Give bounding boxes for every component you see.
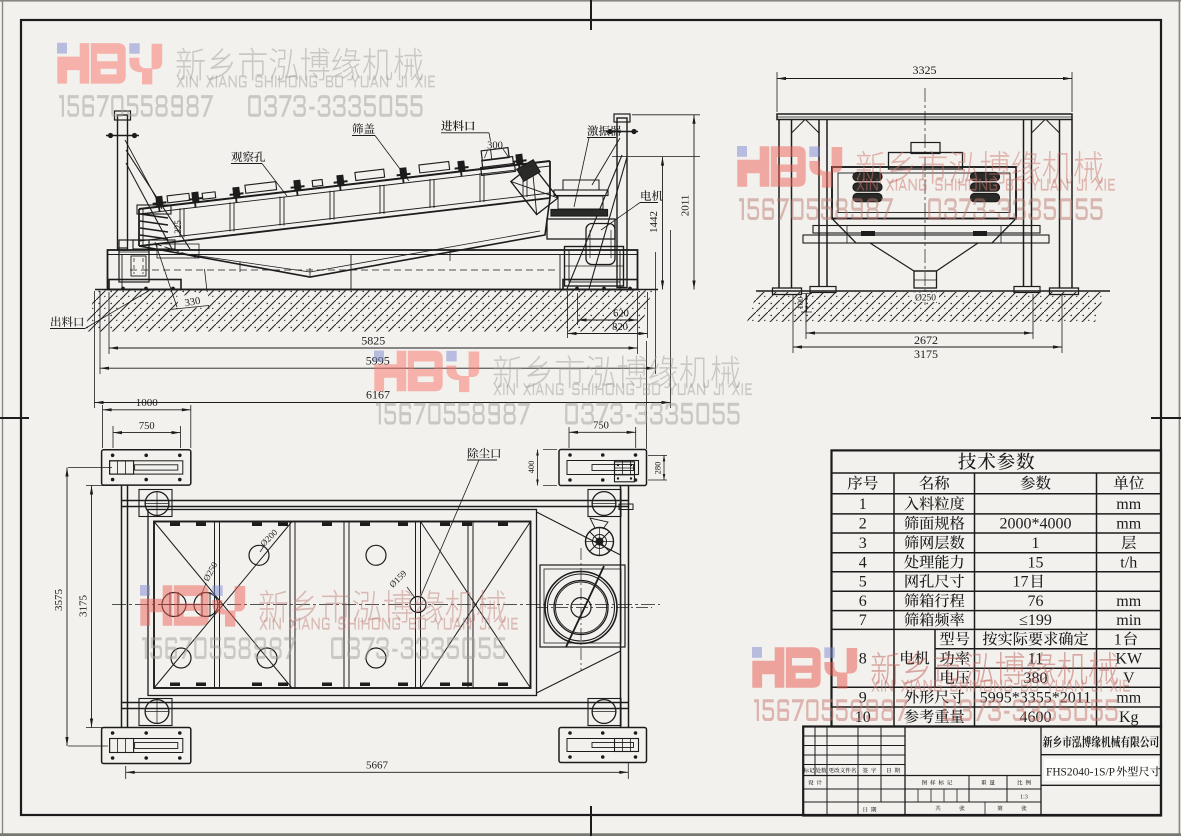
svg-text:1:3: 1:3 bbox=[1020, 794, 1028, 800]
svg-text:1: 1 bbox=[1032, 535, 1040, 552]
svg-text:76: 76 bbox=[1028, 593, 1044, 610]
svg-text:3175: 3175 bbox=[78, 595, 90, 618]
svg-text:2: 2 bbox=[859, 516, 867, 533]
svg-text:300: 300 bbox=[487, 141, 503, 152]
svg-text:mm: mm bbox=[1116, 516, 1141, 533]
svg-text:1: 1 bbox=[859, 496, 867, 513]
svg-text:750: 750 bbox=[139, 421, 155, 432]
svg-text:mm: mm bbox=[1116, 593, 1141, 610]
svg-text:5667: 5667 bbox=[366, 759, 389, 771]
svg-text:3175: 3175 bbox=[914, 347, 938, 361]
svg-text:620: 620 bbox=[613, 309, 629, 320]
svg-text:1: 1 bbox=[1114, 631, 1122, 648]
svg-text:15: 15 bbox=[1028, 554, 1044, 571]
svg-text:3325: 3325 bbox=[913, 63, 937, 77]
svg-text:325: 325 bbox=[173, 220, 183, 234]
svg-text:1000: 1000 bbox=[136, 397, 159, 409]
svg-text:17: 17 bbox=[1013, 574, 1029, 591]
svg-text:3: 3 bbox=[859, 535, 867, 552]
svg-text:Kg: Kg bbox=[1119, 709, 1139, 726]
svg-text:V: V bbox=[1123, 670, 1135, 687]
svg-text:5: 5 bbox=[859, 574, 867, 591]
svg-text:KW: KW bbox=[1115, 651, 1143, 668]
svg-text:6: 6 bbox=[859, 593, 867, 610]
svg-text:4: 4 bbox=[859, 554, 867, 571]
svg-text:t/h: t/h bbox=[1120, 554, 1137, 571]
svg-text:≤199: ≤199 bbox=[1019, 612, 1052, 629]
svg-text:2000*4000: 2000*4000 bbox=[1000, 516, 1072, 533]
svg-text:2672: 2672 bbox=[914, 333, 938, 347]
svg-text:5825: 5825 bbox=[361, 333, 385, 347]
svg-text:1442: 1442 bbox=[648, 211, 660, 233]
svg-text:2011: 2011 bbox=[680, 195, 692, 217]
svg-text:min: min bbox=[1116, 612, 1141, 629]
svg-text:7: 7 bbox=[859, 612, 867, 629]
svg-text:280: 280 bbox=[653, 462, 663, 475]
svg-text:100: 100 bbox=[795, 297, 805, 310]
svg-text:mm: mm bbox=[1116, 496, 1141, 513]
svg-text:Ø250: Ø250 bbox=[915, 294, 936, 304]
svg-text:9: 9 bbox=[859, 689, 867, 706]
svg-text:8: 8 bbox=[859, 651, 867, 668]
svg-text:3575: 3575 bbox=[53, 589, 65, 612]
svg-text:820: 820 bbox=[612, 322, 628, 333]
svg-text:FHS2040-1S/P: FHS2040-1S/P bbox=[1046, 767, 1115, 779]
svg-text:mm: mm bbox=[1116, 689, 1141, 706]
svg-text:400: 400 bbox=[526, 461, 536, 474]
